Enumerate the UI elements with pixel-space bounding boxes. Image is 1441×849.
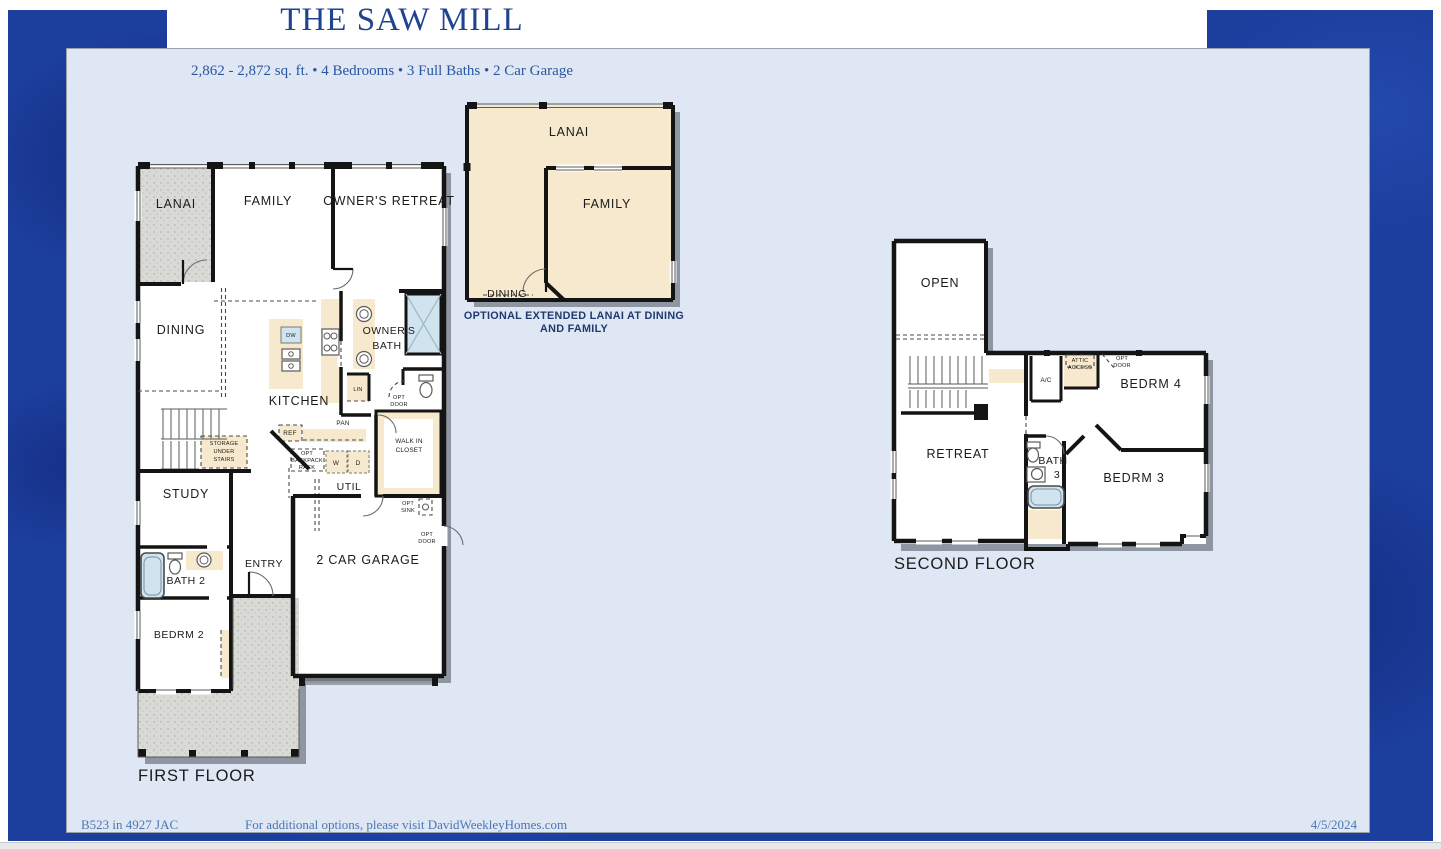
label-bedrm4: BEDRM 4 [1120, 377, 1181, 391]
first-floor-plan: LANAI FAMILY OWNER'S RETREAT DINING KITC… [131, 153, 476, 798]
label-study: STUDY [163, 487, 209, 501]
label-bath2: BATH 2 [167, 575, 206, 587]
first-floor-caption: FIRST FLOOR [138, 767, 256, 785]
label-sf-opt-door-2: DOOR [1113, 363, 1131, 369]
label-opt-door-1: OPT [393, 395, 405, 401]
label-wic-1: WALK IN [395, 438, 423, 445]
label-bedrm2: BEDRM 2 [154, 629, 204, 641]
opt-label-lanai: LANAI [549, 125, 589, 139]
label-sf-opt-door-1: OPT [1116, 356, 1128, 362]
label-ref: REF [283, 430, 296, 437]
label-storage-1: STORAGE [210, 441, 239, 447]
plan-date: 4/5/2024 [1311, 817, 1357, 833]
label-entry: ENTRY [245, 558, 283, 570]
title-band: THE SAW MILL [167, 0, 1207, 48]
page-title: THE SAW MILL [167, 2, 637, 39]
label-util: UTIL [337, 481, 362, 493]
label-family: FAMILY [244, 194, 292, 208]
label-garage: 2 CAR GARAGE [316, 553, 419, 567]
label-bath3-1: BATH [1038, 455, 1067, 467]
label-kitchen: KITCHEN [269, 394, 329, 408]
label-open: OPEN [921, 276, 960, 290]
label-opt-door-2: DOOR [390, 402, 408, 408]
floorplan-sheet: THE SAW MILL 2,862 - 2,872 sq. ft. • 4 B… [0, 0, 1441, 849]
plan-code: B523 in 4927 JAC [81, 817, 178, 833]
bottom-window-edge [0, 842, 1441, 849]
label-wic-2: CLOSET [396, 447, 423, 454]
label-bath3-2: 3 [1054, 469, 1060, 481]
plan-panel: 2,862 - 2,872 sq. ft. • 4 Bedrooms • 3 F… [66, 48, 1370, 833]
second-floor-caption: SECOND FLOOR [894, 555, 1036, 573]
opt-label-dining: DINING [487, 288, 527, 300]
label-backpack-2: BACKPACK [291, 458, 323, 464]
label-lanai: LANAI [156, 197, 196, 211]
label-owners-bath-1: OWNER'S [363, 325, 416, 337]
label-opt-sink-2: SINK [401, 508, 415, 514]
label-backpack-1: OPT [301, 451, 313, 457]
label-owners-bath-2: BATH [372, 340, 401, 352]
label-retreat: RETREAT [926, 447, 989, 461]
footer-note: For additional options, please visit Dav… [245, 817, 567, 833]
label-dining: DINING [157, 323, 206, 337]
label-bedrm3: BEDRM 3 [1103, 471, 1164, 485]
label-pan: PAN [336, 420, 349, 427]
label-garage-door-1: OPT [421, 532, 433, 538]
plan-subtitle: 2,862 - 2,872 sq. ft. • 4 Bedrooms • 3 F… [67, 63, 697, 80]
label-ac: A/C [1040, 377, 1051, 384]
second-floor-plan: OPEN RETREAT A/C ATTIC ACCESS OPT DOOR B… [886, 236, 1216, 581]
label-storage-3: STAIRS [214, 457, 235, 463]
label-storage-2: UNDER [214, 449, 235, 455]
label-lin: LIN [353, 387, 362, 393]
label-attic-1: ATTIC [1072, 358, 1089, 364]
label-owners-retreat: OWNER'S RETREAT [323, 194, 455, 208]
label-dw: DW [286, 333, 296, 339]
option-detail-plan: LANAI FAMILY DINING OPTIONAL EXTENDED LA… [461, 101, 686, 341]
label-opt-sink-1: OPT [402, 501, 414, 507]
label-garage-door-2: DOOR [418, 539, 436, 545]
option-caption-1: OPTIONAL EXTENDED LANAI AT DINING [464, 310, 684, 322]
option-caption-2: AND FAMILY [540, 323, 608, 335]
label-dryer: D [356, 460, 361, 467]
label-attic-2: ACCESS [1068, 365, 1092, 371]
opt-label-family: FAMILY [583, 197, 631, 211]
label-backpack-3: RACK [299, 465, 315, 471]
label-washer: W [333, 460, 340, 467]
